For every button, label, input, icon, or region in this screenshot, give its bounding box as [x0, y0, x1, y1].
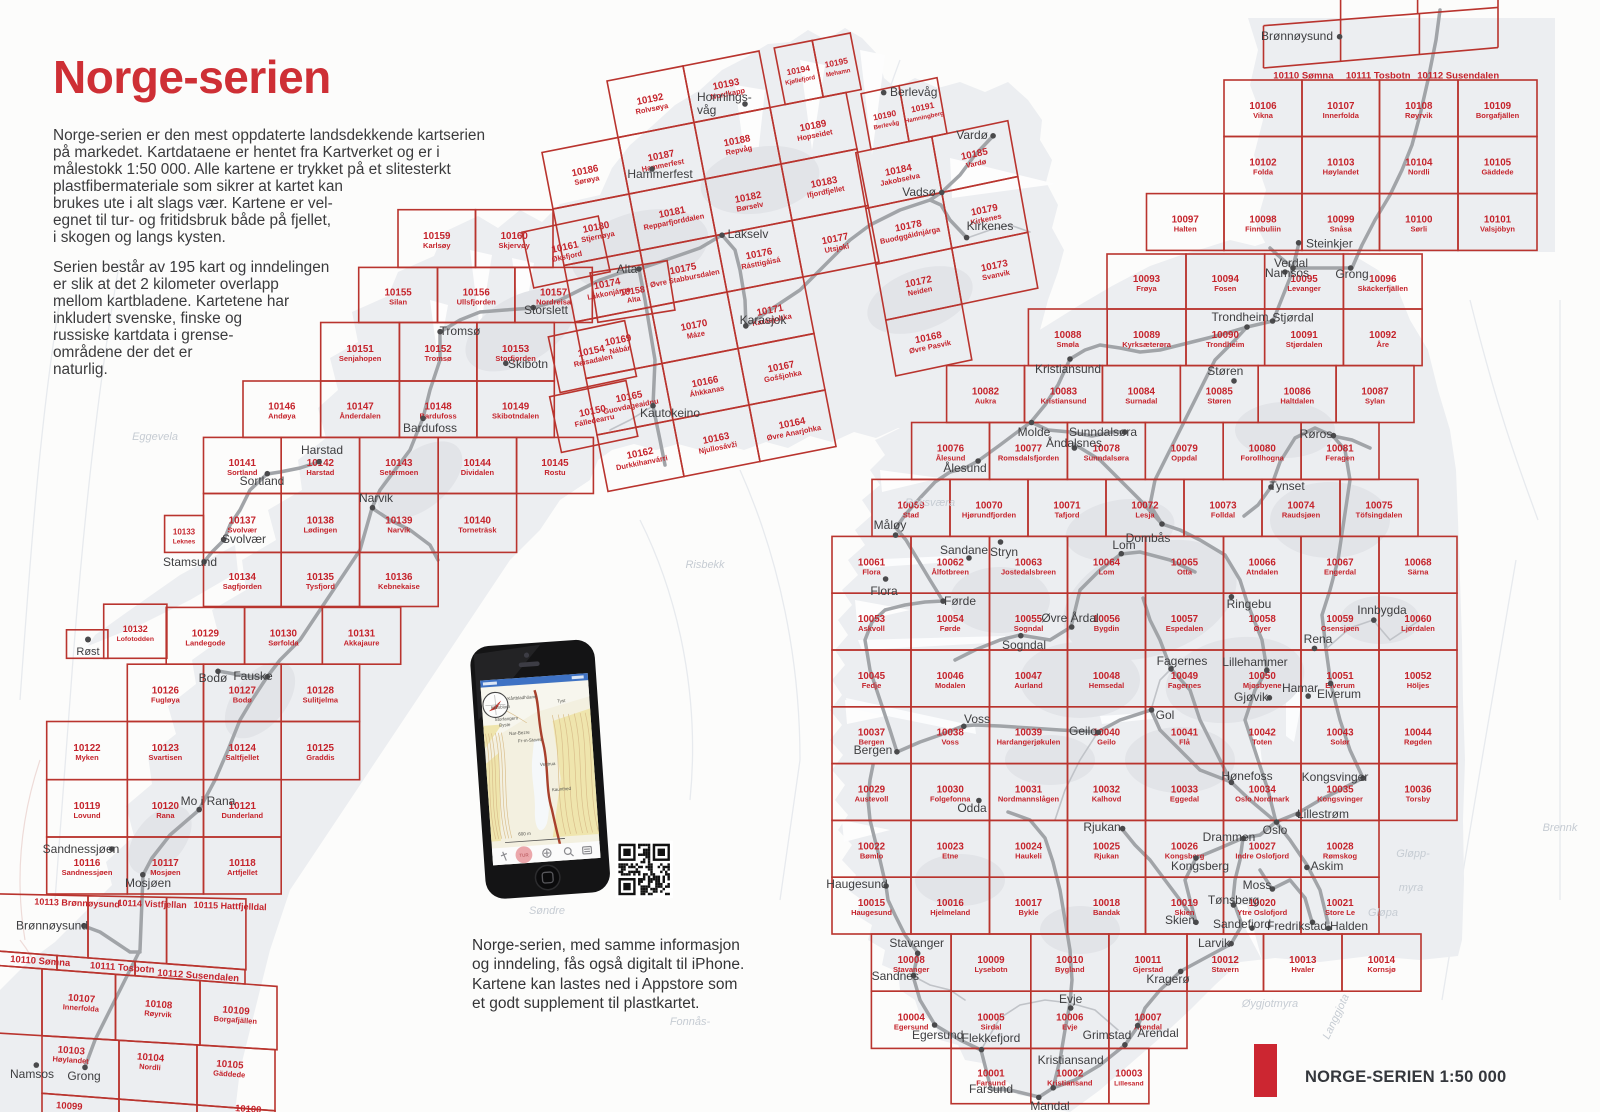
- svg-text:Geilo: Geilo: [1069, 724, 1097, 738]
- svg-text:Hjelmeland: Hjelmeland: [930, 908, 970, 917]
- svg-text:Hvaler: Hvaler: [1291, 965, 1314, 974]
- svg-text:Stamsund: Stamsund: [163, 555, 217, 569]
- svg-text:10132: 10132: [123, 624, 148, 634]
- svg-text:Namsos: Namsos: [10, 1067, 54, 1081]
- svg-text:Ullsfjorden: Ullsfjorden: [457, 297, 497, 306]
- svg-text:Tysfjord: Tysfjord: [306, 582, 335, 591]
- svg-text:Dividalen: Dividalen: [461, 468, 495, 477]
- svg-text:Grong: Grong: [1335, 267, 1368, 281]
- svg-text:Voss: Voss: [964, 712, 990, 726]
- svg-text:Bodø: Bodø: [233, 695, 253, 704]
- svg-text:Vikna: Vikna: [1253, 111, 1274, 120]
- svg-text:Ytre Oslofjord: Ytre Oslofjord: [1237, 908, 1287, 917]
- svg-text:Folldal: Folldal: [1211, 510, 1235, 519]
- svg-text:Tromsø: Tromsø: [425, 354, 453, 363]
- svg-text:Smøla: Smøla: [1057, 340, 1080, 349]
- svg-text:Kirkenes: Kirkenes: [967, 219, 1014, 233]
- svg-text:Honnings-: Honnings-: [697, 90, 752, 104]
- svg-text:10003: 10003: [1115, 1069, 1143, 1080]
- svg-text:Eggedal: Eggedal: [1170, 795, 1199, 804]
- svg-text:Borgafjällen: Borgafjällen: [1476, 111, 1520, 120]
- svg-text:Narvik: Narvik: [387, 526, 411, 535]
- svg-text:Flora: Flora: [870, 584, 898, 598]
- svg-text:Levanger: Levanger: [1287, 284, 1320, 293]
- svg-text:Oslo Nordmark: Oslo Nordmark: [1235, 795, 1290, 804]
- svg-text:Halten: Halten: [1174, 225, 1197, 234]
- svg-text:Fedje: Fedje: [862, 681, 882, 690]
- svg-text:Gjøvik: Gjøvik: [1234, 690, 1269, 704]
- svg-text:Åre: Åre: [1377, 340, 1390, 349]
- svg-text:Etne: Etne: [942, 851, 958, 860]
- svg-text:Sortland: Sortland: [240, 474, 285, 488]
- svg-text:Sandane: Sandane: [940, 543, 988, 557]
- svg-text:Kragerø: Kragerø: [1146, 972, 1190, 986]
- svg-text:Brønnøysund: Brønnøysund: [1261, 29, 1333, 43]
- svg-text:Berlevåg: Berlevåg: [890, 85, 937, 99]
- svg-text:Trondheim: Trondheim: [1206, 340, 1245, 349]
- svg-text:Landegode: Landegode: [185, 638, 225, 647]
- svg-text:Harstad: Harstad: [306, 468, 334, 477]
- svg-text:Folda: Folda: [1253, 168, 1274, 177]
- svg-text:Karasjok: Karasjok: [740, 313, 788, 327]
- svg-text:Höljes: Höljes: [1407, 681, 1430, 690]
- svg-text:Øygjotmyra: Øygjotmyra: [1241, 998, 1298, 1010]
- svg-text:Bergen: Bergen: [854, 743, 893, 757]
- svg-text:Nordli: Nordli: [1408, 168, 1430, 177]
- svg-text:Kristiansund: Kristiansund: [1041, 397, 1087, 406]
- svg-text:Kristiansand: Kristiansand: [1038, 1053, 1104, 1067]
- svg-text:Askim: Askim: [1311, 859, 1344, 873]
- svg-text:Røst: Røst: [76, 646, 99, 658]
- svg-text:Tynset: Tynset: [1269, 479, 1305, 493]
- svg-text:Støren: Støren: [1207, 364, 1243, 378]
- svg-text:Drammen: Drammen: [1203, 830, 1256, 844]
- svg-text:Førde: Førde: [940, 624, 961, 633]
- svg-text:Fauske: Fauske: [233, 669, 273, 683]
- svg-text:Aukra: Aukra: [975, 397, 997, 406]
- svg-text:Tønsberg: Tønsberg: [1208, 893, 1259, 907]
- svg-text:Sogndal: Sogndal: [1002, 638, 1046, 652]
- svg-text:Ålesund: Ålesund: [943, 460, 986, 475]
- svg-text:Atndalen: Atndalen: [1246, 567, 1279, 576]
- svg-text:Haltdalen: Haltdalen: [1280, 397, 1314, 406]
- svg-text:Hjørundfjorden: Hjørundfjorden: [962, 510, 1017, 519]
- svg-text:Harstad: Harstad: [301, 443, 343, 457]
- svg-text:Haukeli: Haukeli: [1015, 851, 1042, 860]
- svg-text:Stavanger: Stavanger: [889, 936, 944, 950]
- svg-text:Lillesand: Lillesand: [1114, 1081, 1143, 1088]
- svg-text:Sunndalsøra: Sunndalsøra: [1084, 453, 1130, 462]
- svg-text:Skäckerfjällen: Skäckerfjällen: [1358, 284, 1409, 293]
- svg-text:Rostu: Rostu: [544, 468, 566, 477]
- svg-text:Fosen: Fosen: [1214, 284, 1237, 293]
- svg-text:Haugesund: Haugesund: [851, 908, 892, 917]
- svg-text:Fagernes: Fagernes: [1157, 654, 1208, 668]
- svg-text:våg: våg: [697, 103, 716, 117]
- svg-text:Høylandet: Høylandet: [1323, 168, 1360, 177]
- svg-text:Oslo: Oslo: [1263, 823, 1288, 837]
- svg-text:Søndre: Søndre: [529, 905, 565, 917]
- svg-text:Saltfjellet: Saltfjellet: [226, 753, 260, 762]
- svg-text:Romsdalsfjorden: Romsdalsfjorden: [998, 453, 1060, 462]
- svg-text:10099: 10099: [56, 1100, 83, 1112]
- svg-text:10112 Susendalen: 10112 Susendalen: [1417, 70, 1499, 81]
- svg-text:Fredrikstad: Fredrikstad: [1267, 919, 1327, 933]
- svg-text:Stjørdalen: Stjørdalen: [1286, 340, 1323, 349]
- svg-text:Kyrksæterøra: Kyrksæterøra: [1122, 340, 1172, 349]
- svg-text:Dombås: Dombås: [1126, 531, 1171, 545]
- svg-text:Lysebotn: Lysebotn: [974, 965, 1007, 974]
- svg-text:Ånderdalen: Ånderdalen: [339, 412, 381, 421]
- svg-text:10111 Tosbotn: 10111 Tosbotn: [1346, 70, 1411, 81]
- svg-text:Askvoll: Askvoll: [858, 624, 885, 633]
- svg-text:Silan: Silan: [389, 297, 407, 306]
- svg-text:Tafjord: Tafjord: [1055, 510, 1080, 519]
- svg-text:Evje: Evje: [1062, 1022, 1077, 1031]
- svg-text:Sirdal: Sirdal: [981, 1022, 1002, 1031]
- svg-text:Myken: Myken: [75, 753, 99, 762]
- svg-text:Ringebu: Ringebu: [1227, 597, 1272, 611]
- svg-text:Oppdal: Oppdal: [1171, 453, 1197, 462]
- svg-text:Mo i Rana: Mo i Rana: [181, 794, 236, 808]
- svg-text:Andøya: Andøya: [268, 412, 296, 421]
- svg-text:Mjøsbyene: Mjøsbyene: [1243, 681, 1282, 690]
- svg-text:Eggevela: Eggevela: [132, 431, 178, 443]
- svg-text:Rana: Rana: [156, 811, 175, 820]
- svg-text:Grong: Grong: [67, 1069, 100, 1083]
- svg-text:Namsos: Namsos: [1265, 266, 1309, 280]
- svg-text:Hamar: Hamar: [1282, 681, 1318, 695]
- svg-text:Toten: Toten: [1252, 738, 1272, 747]
- svg-text:600 m: 600 m: [518, 831, 531, 837]
- svg-text:Svartisen: Svartisen: [149, 753, 183, 762]
- svg-text:Vadsø: Vadsø: [902, 185, 936, 199]
- svg-text:Töfsingdalen: Töfsingdalen: [1356, 510, 1403, 519]
- svg-text:Egersund: Egersund: [912, 1028, 963, 1042]
- svg-text:Akkajaure: Akkajaure: [344, 638, 380, 647]
- svg-text:Kongsvinger: Kongsvinger: [1302, 770, 1369, 784]
- svg-text:Innerfolda: Innerfolda: [1323, 111, 1360, 120]
- svg-text:Kalhovd: Kalhovd: [1092, 795, 1122, 804]
- svg-text:Bygland: Bygland: [1055, 965, 1085, 974]
- svg-text:Skibotndalen: Skibotndalen: [492, 412, 540, 421]
- svg-text:Narvik: Narvik: [359, 491, 394, 505]
- svg-text:Sandefjord: Sandefjord: [1213, 917, 1271, 931]
- svg-text:Haugesund: Haugesund: [826, 877, 887, 891]
- svg-text:Flekkefjord: Flekkefjord: [962, 1031, 1021, 1045]
- svg-text:Kongsberg: Kongsberg: [1171, 859, 1229, 873]
- svg-text:Bandak: Bandak: [1093, 908, 1121, 917]
- svg-text:Kongsvinger: Kongsvinger: [1317, 795, 1363, 804]
- svg-text:10133: 10133: [173, 528, 196, 537]
- svg-text:Hardangerjøkulen: Hardangerjøkulen: [997, 738, 1061, 747]
- svg-text:Fagernes: Fagernes: [1168, 681, 1201, 690]
- svg-text:Innbygda: Innbygda: [1357, 603, 1407, 617]
- svg-text:Støren: Støren: [1207, 397, 1231, 406]
- svg-text:Arendal: Arendal: [1137, 1026, 1178, 1040]
- svg-text:Lødingen: Lødingen: [304, 526, 338, 535]
- svg-text:Leknes: Leknes: [173, 539, 196, 546]
- svg-text:Gäddede: Gäddede: [1481, 168, 1513, 177]
- svg-text:Tromsø: Tromsø: [440, 324, 482, 338]
- svg-text:Geilo: Geilo: [1097, 738, 1116, 747]
- svg-text:Førde: Førde: [944, 594, 976, 608]
- svg-text:Odda: Odda: [957, 801, 987, 815]
- svg-text:Kristiansund: Kristiansund: [1035, 362, 1101, 376]
- svg-text:Grimstad: Grimstad: [1083, 1028, 1132, 1042]
- svg-text:Mandal: Mandal: [1030, 1099, 1069, 1112]
- svg-text:Modalen: Modalen: [935, 681, 966, 690]
- svg-text:Aurland: Aurland: [1014, 681, 1043, 690]
- svg-text:Surnadal: Surnadal: [1125, 397, 1157, 406]
- svg-text:Byste: Byste: [499, 722, 511, 728]
- svg-text:Fugløya: Fugløya: [151, 695, 181, 704]
- svg-text:Halden: Halden: [1330, 919, 1368, 933]
- svg-text:Frøya: Frøya: [1136, 284, 1157, 293]
- svg-text:Farsund: Farsund: [969, 1082, 1013, 1096]
- svg-text:TUR: TUR: [519, 852, 529, 858]
- svg-text:Brennk: Brennk: [1543, 822, 1578, 834]
- svg-text:Sandnes: Sandnes: [872, 969, 919, 983]
- svg-text:Ålfotbreen: Ålfotbreen: [931, 567, 969, 576]
- svg-text:Evje: Evje: [1059, 992, 1083, 1006]
- svg-text:Otta: Otta: [1177, 567, 1193, 576]
- svg-text:Austevoll: Austevoll: [855, 795, 889, 804]
- svg-text:Indre Oslofjord: Indre Oslofjord: [1235, 851, 1289, 860]
- svg-text:Sogndal: Sogndal: [1014, 624, 1044, 633]
- svg-text:Gol: Gol: [1156, 708, 1175, 722]
- svg-text:Jostedalsbreen: Jostedalsbreen: [1001, 567, 1056, 576]
- svg-text:Rjukan: Rjukan: [1094, 851, 1119, 860]
- svg-text:Alta: Alta: [617, 262, 638, 276]
- svg-text:10110 Sømna: 10110 Sømna: [1273, 70, 1334, 81]
- svg-text:Fonnås-: Fonnås-: [670, 1016, 711, 1028]
- svg-text:Sandnessjøen: Sandnessjøen: [43, 842, 120, 856]
- svg-text:Sørli: Sørli: [1410, 225, 1427, 234]
- svg-text:Forollhogna: Forollhogna: [1241, 453, 1285, 462]
- svg-text:Sandnessjøen: Sandnessjøen: [62, 868, 113, 877]
- svg-text:Elverum: Elverum: [1317, 687, 1361, 701]
- svg-text:Hammerfest: Hammerfest: [627, 167, 693, 181]
- svg-text:Tyst: Tyst: [557, 698, 566, 704]
- svg-text:Skibotn: Skibotn: [508, 357, 548, 371]
- svg-text:Lom: Lom: [1099, 567, 1115, 576]
- svg-text:Lillestrøm: Lillestrøm: [1297, 807, 1349, 821]
- svg-text:Solør: Solør: [1330, 738, 1349, 747]
- svg-text:Lesja: Lesja: [1135, 510, 1155, 519]
- svg-text:Rjukan: Rjukan: [1083, 820, 1120, 834]
- svg-text:Vardø: Vardø: [956, 128, 988, 142]
- svg-text:Gløpa: Gløpa: [1368, 907, 1398, 919]
- svg-text:Bodø: Bodø: [199, 671, 228, 685]
- svg-text:Svolvær: Svolvær: [222, 532, 266, 546]
- svg-text:Engerdal: Engerdal: [1324, 567, 1356, 576]
- svg-text:Raudsjøen: Raudsjøen: [1282, 510, 1321, 519]
- svg-text:10100: 10100: [235, 1103, 262, 1112]
- svg-text:Espedalen: Espedalen: [1166, 624, 1204, 633]
- svg-text:Dunderland: Dunderland: [221, 811, 263, 820]
- svg-text:Stryn: Stryn: [990, 545, 1018, 559]
- svg-text:Sylan: Sylan: [1365, 397, 1385, 406]
- svg-text:Kornsjø: Kornsjø: [1367, 965, 1396, 974]
- svg-text:Roksværa: Roksværa: [905, 497, 955, 509]
- svg-text:Risbekk: Risbekk: [685, 559, 725, 571]
- svg-text:Kebnekaise: Kebnekaise: [378, 582, 420, 591]
- svg-text:Bømlo: Bømlo: [860, 851, 884, 860]
- svg-text:Larvik: Larvik: [1198, 936, 1231, 950]
- svg-text:Store Le: Store Le: [1325, 908, 1355, 917]
- svg-text:Kautokeino: Kautokeino: [640, 406, 700, 420]
- svg-text:Flora: Flora: [862, 567, 881, 576]
- svg-text:Lofotodden: Lofotodden: [117, 636, 154, 643]
- svg-text:Bykle: Bykle: [1018, 908, 1038, 917]
- svg-text:Flå: Flå: [1179, 738, 1191, 747]
- svg-text:Røyrvik: Røyrvik: [1405, 111, 1433, 120]
- svg-text:Øyer: Øyer: [1254, 624, 1271, 633]
- svg-text:Bygdin: Bygdin: [1094, 624, 1120, 633]
- svg-text:Nordmannslågen: Nordmannslågen: [998, 795, 1060, 804]
- svg-text:Graddis: Graddis: [306, 753, 334, 762]
- svg-text:Feragen: Feragen: [1325, 453, 1355, 462]
- svg-text:myra: myra: [1399, 882, 1423, 894]
- svg-text:Gløpp-: Gløpp-: [1396, 848, 1430, 860]
- svg-text:Rena: Rena: [1304, 632, 1333, 646]
- svg-text:Särna: Särna: [1408, 567, 1430, 576]
- svg-text:Røgden: Røgden: [1404, 738, 1432, 747]
- svg-text:Måløy: Måløy: [874, 518, 907, 532]
- svg-text:Sagfjorden: Sagfjorden: [223, 582, 263, 591]
- svg-text:Storslett: Storslett: [524, 303, 569, 317]
- svg-text:Øvre Årdal: Øvre Årdal: [1041, 610, 1098, 625]
- svg-text:Mosjøen: Mosjøen: [125, 876, 171, 890]
- svg-text:Setermoen: Setermoen: [380, 468, 419, 477]
- svg-text:Stavern: Stavern: [1211, 965, 1239, 974]
- svg-text:Snåsa: Snåsa: [1330, 225, 1353, 234]
- svg-text:Hønefoss: Hønefoss: [1221, 769, 1272, 783]
- svg-text:Bardufoss: Bardufoss: [403, 421, 457, 435]
- svg-text:Torsby: Torsby: [1406, 795, 1431, 804]
- svg-text:Voss: Voss: [942, 738, 959, 747]
- svg-text:Sørfolda: Sørfolda: [268, 638, 299, 647]
- svg-text:Valsjöbyn: Valsjöbyn: [1480, 225, 1515, 234]
- svg-text:Ljørdalen: Ljørdalen: [1401, 624, 1435, 633]
- svg-text:Senjahopen: Senjahopen: [339, 354, 382, 363]
- svg-text:Artfjellet: Artfjellet: [227, 868, 258, 877]
- svg-text:Lakselv: Lakselv: [728, 227, 769, 241]
- svg-text:Brønnøysund: Brønnøysund: [16, 919, 88, 933]
- svg-text:Finnbuliin: Finnbuliin: [1245, 225, 1281, 234]
- svg-text:Åndalsnes: Åndalsnes: [1046, 435, 1102, 450]
- svg-text:Torneträsk: Torneträsk: [458, 526, 497, 535]
- svg-text:Nordli: Nordli: [139, 1062, 161, 1072]
- svg-text:Lovund: Lovund: [73, 811, 100, 820]
- svg-text:Skien: Skien: [1165, 913, 1195, 927]
- svg-text:Steinkjer: Steinkjer: [1306, 237, 1353, 251]
- svg-text:Stjørdal: Stjørdal: [1272, 311, 1313, 325]
- svg-text:Sulitjelma: Sulitjelma: [303, 695, 339, 704]
- svg-text:Trondheim: Trondheim: [1212, 310, 1269, 324]
- svg-text:Moss: Moss: [1243, 878, 1272, 892]
- svg-text:Røros: Røros: [1300, 427, 1333, 441]
- svg-text:Lillehammer: Lillehammer: [1222, 655, 1287, 669]
- svg-text:Hemsedal: Hemsedal: [1089, 681, 1124, 690]
